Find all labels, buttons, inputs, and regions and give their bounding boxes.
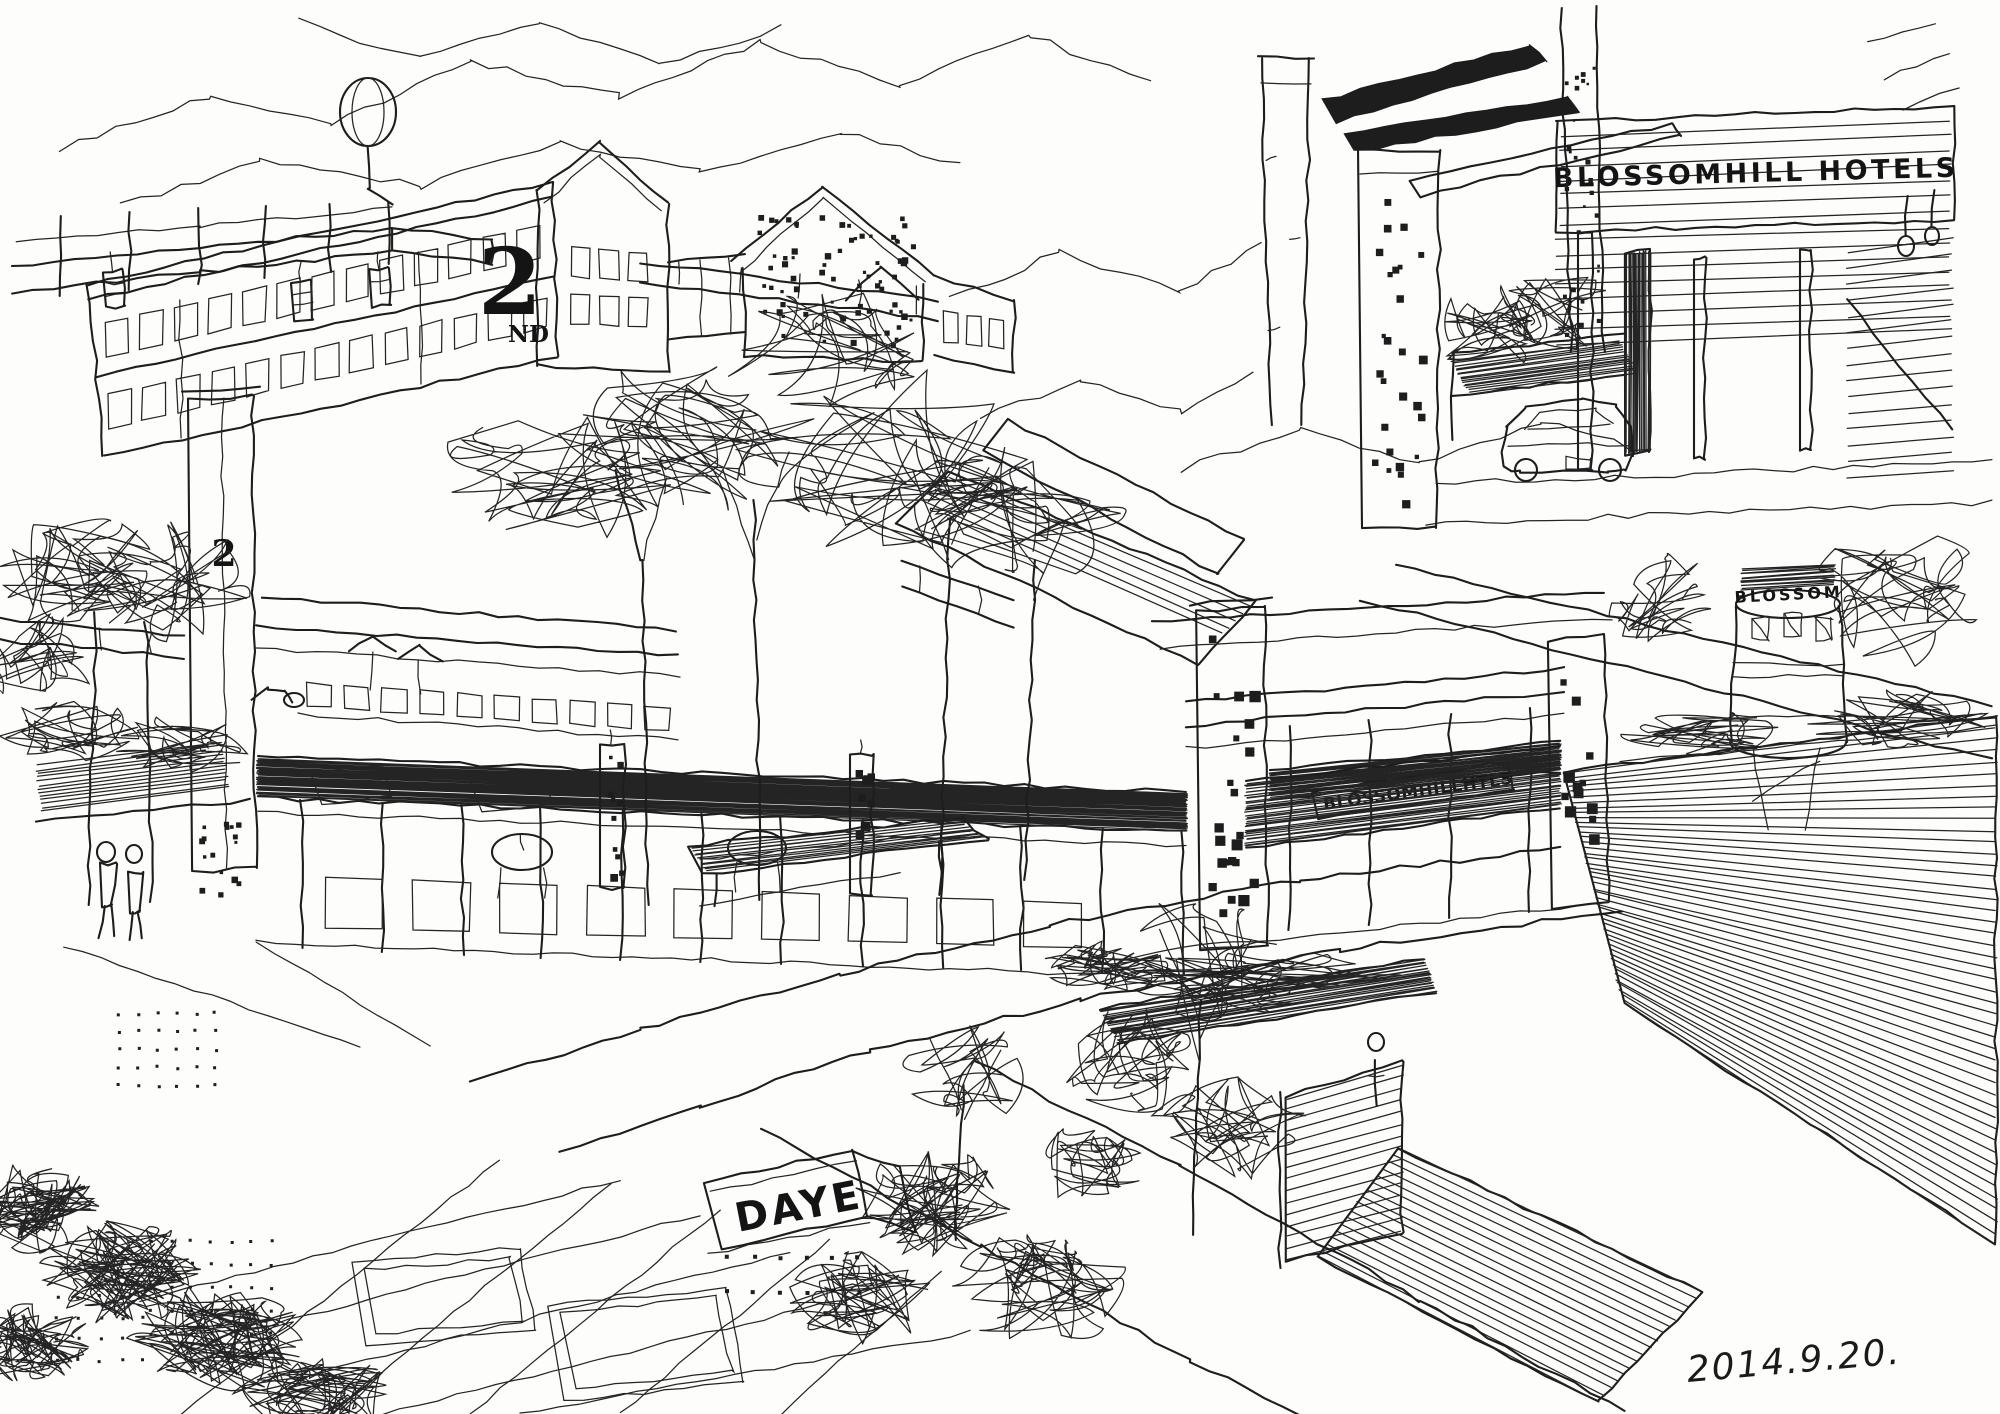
ink-stroke	[1451, 354, 1454, 440]
ink-stroke	[743, 268, 746, 356]
ink-stroke	[1012, 300, 1016, 372]
ink-stroke	[492, 834, 552, 870]
ink-stroke	[221, 398, 228, 868]
gable-building-2nd: 2 ND	[478, 141, 745, 372]
ink-stroke	[538, 364, 668, 371]
chimney-stack	[1258, 56, 1314, 425]
ink-stroke	[128, 872, 143, 914]
ink-stroke	[520, 834, 523, 850]
dark-hedge	[127, 1287, 302, 1391]
ink-stroke	[364, 1257, 524, 1334]
ink-stroke	[328, 204, 331, 272]
ink-stroke	[256, 940, 1186, 978]
ink-stroke	[560, 1295, 734, 1388]
clerestory-windows	[307, 682, 671, 730]
ink-stroke	[182, 387, 260, 392]
shrub	[952, 1235, 1125, 1338]
dark-hedge	[40, 1221, 201, 1323]
foliage	[1609, 553, 1711, 641]
ink-stroke	[292, 292, 312, 295]
ink-stroke	[1266, 156, 1276, 160]
ink-stroke	[112, 906, 115, 936]
ink-stroke	[100, 863, 117, 908]
ink-stroke	[380, 1290, 881, 1414]
display-tank	[492, 834, 552, 898]
plaza-sign-wall: DAYE	[704, 1150, 916, 1295]
ink-stroke	[761, 1129, 1301, 1414]
ink-stroke	[1448, 714, 1452, 918]
ink-stroke	[1752, 619, 1769, 641]
ink-stroke	[1369, 720, 1372, 925]
ink-stroke	[1285, 1065, 1403, 1259]
ink-stroke	[370, 652, 373, 690]
ink-stroke	[36, 799, 250, 822]
water-tower-sign-text: BLOSSOM	[1734, 582, 1843, 607]
walking-person	[97, 842, 117, 938]
column	[1694, 257, 1707, 460]
ink-stroke	[1556, 220, 1954, 233]
ink-stroke	[1556, 106, 1954, 121]
ink-stroke	[902, 587, 1013, 628]
ink-stroke	[256, 625, 678, 655]
ink-stroke	[1186, 713, 1564, 748]
ink-stroke	[103, 269, 125, 309]
hotel-band-sign-text: BLOSSOMHILL HOTELS	[1553, 153, 1959, 195]
ink-stroke	[981, 372, 1253, 418]
pedestrians	[97, 842, 143, 940]
ink-stroke	[778, 862, 781, 892]
ink-stroke	[902, 561, 1014, 600]
ink-stroke	[552, 182, 559, 356]
ink-stroke	[1301, 58, 1310, 425]
dark-hedge	[0, 1304, 89, 1381]
center-roof-planes	[896, 419, 1256, 665]
ink-stroke	[1368, 1075, 1384, 1077]
ink-stroke	[284, 693, 304, 707]
ink-stroke	[1508, 443, 1628, 447]
parked-car	[1502, 398, 1633, 481]
ink-stroke	[126, 845, 142, 863]
ink-stroke	[298, 713, 678, 740]
embankment-hatch	[1563, 716, 1997, 1245]
ink-stroke	[922, 284, 924, 360]
ink-stroke	[388, 202, 389, 264]
factory-number-2: 2	[478, 228, 542, 336]
ink-stroke	[1020, 826, 1024, 970]
ink-stroke	[668, 332, 745, 339]
ink-stroke	[1360, 171, 1438, 174]
tactile-paving-dots	[117, 1011, 219, 1089]
ink-stroke	[381, 803, 384, 952]
ink-stroke	[418, 660, 421, 694]
gable-windows	[571, 247, 649, 327]
ink-stroke	[60, 216, 61, 296]
ink-stroke	[1258, 56, 1314, 59]
ink-stroke	[640, 283, 938, 322]
ink-stroke	[64, 947, 360, 1047]
ink-stroke	[461, 805, 464, 955]
ink-stroke	[965, 1050, 1001, 1119]
ink-stroke	[1261, 83, 1311, 84]
ink-stroke	[1152, 593, 1604, 621]
ink-stroke	[99, 628, 101, 650]
ink-stroke	[1262, 58, 1272, 425]
pylon-square-dots	[1209, 636, 1261, 918]
ink-stroke	[1733, 675, 1843, 678]
sketch-canvas: 2 ND	[0, 0, 2000, 1414]
colonnade-building	[256, 598, 1188, 979]
ink-stroke	[1815, 618, 1832, 641]
embankment-wall	[1564, 716, 1998, 1244]
ink-stroke	[179, 300, 183, 438]
ink-stroke	[943, 311, 1004, 349]
ink-stroke	[860, 740, 862, 754]
bush-row	[1621, 712, 1778, 755]
shrub	[856, 1151, 1010, 1255]
plaza-paving	[0, 817, 1125, 1414]
ink-stroke	[1784, 612, 1802, 637]
ink-stroke	[104, 357, 557, 455]
dotted-window-tower	[1358, 149, 1441, 529]
walking-person	[126, 845, 143, 940]
ink-stroke	[1898, 236, 1914, 256]
ink-stroke	[140, 1181, 621, 1302]
ink-stroke	[1181, 423, 1651, 473]
ink-stroke	[299, 18, 781, 64]
ink-stroke	[377, 252, 379, 270]
ink-stroke	[520, 1330, 970, 1413]
ink-stroke	[418, 252, 422, 384]
ink-stroke	[679, 262, 680, 284]
ink-stroke	[920, 566, 921, 592]
spotlight-drum	[340, 78, 396, 146]
ink-stroke	[1278, 1092, 1281, 1268]
planter-hatch	[36, 743, 228, 811]
ink-stroke	[1733, 663, 1843, 666]
balcony-rail-slats	[257, 759, 1188, 831]
ink-stroke	[291, 280, 313, 322]
factory-windows-upper	[105, 226, 540, 358]
ink-stroke	[700, 814, 703, 962]
column	[1800, 250, 1813, 451]
signature-date: 2014.9.20.	[1685, 1331, 1902, 1391]
ink-stroke	[1193, 1000, 1201, 1235]
ink-stroke	[262, 598, 676, 632]
courtyard	[1045, 716, 1997, 1402]
ink-stroke	[1290, 238, 1300, 240]
ink-stroke	[978, 586, 981, 614]
foliage	[728, 293, 916, 405]
sketch-page: 2 ND	[0, 0, 2000, 1414]
dark-hedge	[233, 1359, 386, 1414]
ink-stroke	[723, 470, 755, 561]
ink-stroke	[700, 260, 702, 336]
left-tree-cluster	[0, 519, 250, 905]
ink-stroke	[544, 868, 547, 898]
ink-stroke	[644, 478, 667, 561]
ink-stroke	[210, 1216, 700, 1341]
ink-stroke	[1884, 54, 1949, 80]
branchy-tree	[1127, 903, 1277, 1235]
ink-stroke	[740, 268, 742, 292]
ink-stroke	[97, 842, 115, 862]
ink-stroke	[1034, 520, 1066, 600]
ink-stroke	[256, 942, 430, 1046]
ink-stroke	[610, 730, 611, 744]
ink-stroke	[1868, 24, 1936, 42]
ink-stroke	[1528, 708, 1532, 912]
ink-stroke	[540, 808, 543, 958]
ink-stroke	[128, 212, 131, 290]
ink-stroke	[1368, 1033, 1384, 1051]
ink-stroke	[934, 355, 1014, 373]
ink-stroke	[1190, 598, 1272, 606]
ink-stroke	[12, 251, 392, 294]
ink-stroke	[138, 912, 142, 938]
ink-stroke	[352, 78, 384, 146]
ink-stroke	[1024, 560, 1035, 880]
ink-stroke	[120, 134, 960, 203]
ink-stroke	[1160, 619, 1612, 649]
shrub	[790, 1252, 929, 1344]
ink-stroke	[949, 243, 1261, 297]
ink-stroke	[757, 452, 789, 540]
ink-stroke	[1560, 679, 1599, 845]
ink-stroke	[620, 1239, 829, 1412]
roads	[64, 847, 1625, 1414]
pylon-plaques	[199, 822, 241, 898]
ink-stroke	[798, 274, 800, 298]
ink-stroke	[1426, 500, 1992, 525]
ink-stroke	[1730, 606, 1736, 742]
ink-stroke	[368, 146, 393, 205]
ink-stroke	[144, 622, 153, 902]
ink-stroke	[349, 636, 396, 651]
ink-stroke	[149, 632, 152, 654]
ink-stroke	[729, 258, 732, 334]
factory-number-nd: ND	[508, 321, 549, 348]
ink-stroke	[744, 355, 922, 362]
cafe-umbrella	[349, 636, 443, 694]
ink-stroke	[188, 395, 257, 873]
ink-stroke	[99, 906, 105, 938]
foliage	[737, 370, 1027, 549]
ink-stroke	[930, 1040, 961, 1110]
ink-stroke	[293, 302, 313, 305]
ink-stroke	[60, 35, 1151, 151]
ink-stroke	[86, 284, 102, 456]
ink-stroke	[300, 800, 303, 948]
ink-stroke	[616, 470, 649, 905]
ink-stroke	[1525, 408, 1614, 429]
ink-stroke	[130, 912, 133, 940]
hanging-lamp	[291, 262, 313, 321]
ink-stroke	[1925, 227, 1939, 245]
